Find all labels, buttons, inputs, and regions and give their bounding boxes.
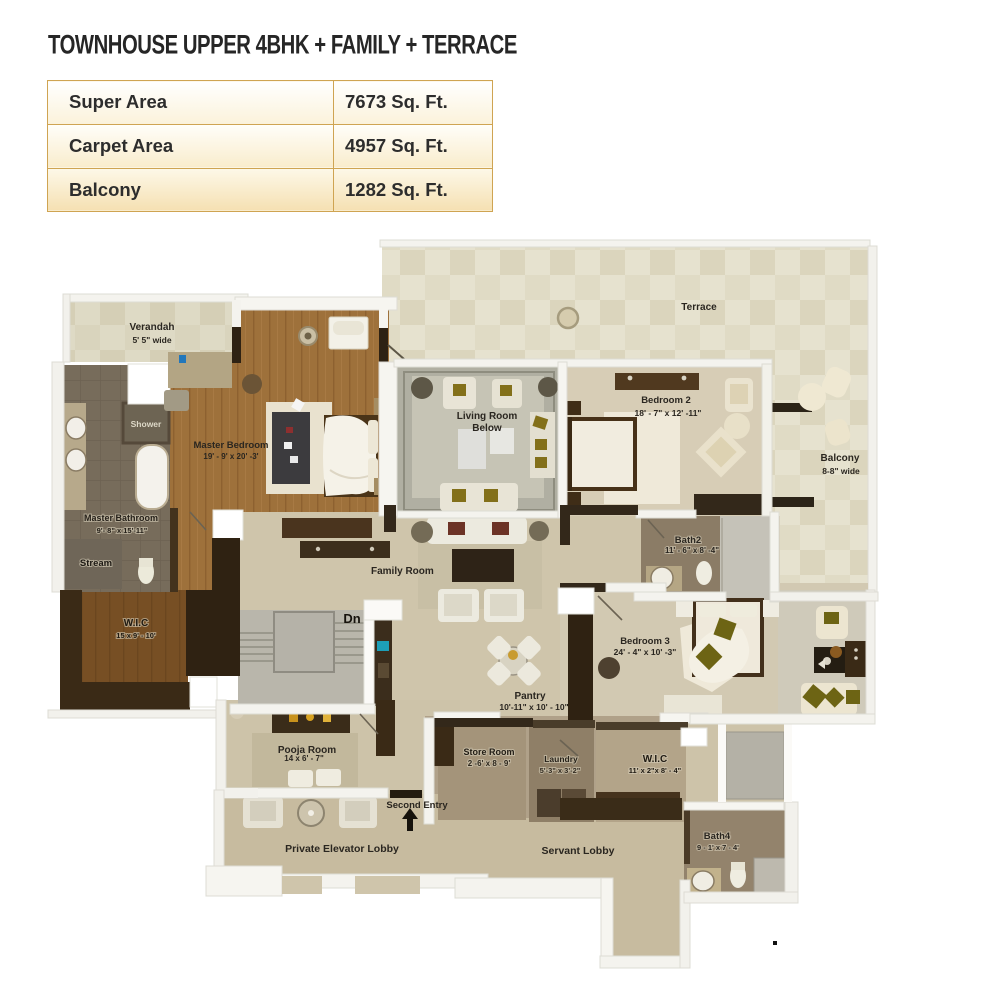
- svg-text:Private Elevator Lobby: Private Elevator Lobby: [285, 843, 399, 855]
- svg-text:Terrace: Terrace: [681, 302, 717, 313]
- svg-text:W.I.C: W.I.C: [124, 618, 148, 629]
- svg-text:24' - 4" x 10' -3": 24' - 4" x 10' -3": [614, 647, 677, 657]
- svg-text:11' x 2"x 8' - 4": 11' x 2"x 8' - 4": [629, 766, 682, 775]
- svg-text:Stream: Stream: [80, 558, 112, 569]
- svg-text:Living Room: Living Room: [457, 411, 518, 422]
- svg-text:9'- 8" x 15'-11": 9'- 8" x 15'-11": [97, 526, 148, 535]
- svg-text:5' 5" wide: 5' 5" wide: [132, 335, 171, 345]
- svg-text:Verandah: Verandah: [129, 322, 174, 333]
- svg-text:W.I.C: W.I.C: [643, 754, 667, 765]
- svg-text:Below: Below: [472, 423, 502, 434]
- svg-text:Bedroom 2: Bedroom 2: [641, 395, 691, 406]
- svg-text:14 x 6' - 7": 14 x 6' - 7": [284, 754, 324, 763]
- svg-text:15 x 9' - 10': 15 x 9' - 10': [116, 631, 156, 640]
- svg-text:Laundry: Laundry: [544, 754, 578, 764]
- svg-text:Master Bathroom: Master Bathroom: [84, 513, 158, 523]
- svg-text:18' - 7" x 12' -11": 18' - 7" x 12' -11": [635, 408, 702, 418]
- svg-text:10'-11" x 10' - 10": 10'-11" x 10' - 10": [499, 702, 568, 712]
- svg-text:11' - 6" x 8' -4": 11' - 6" x 8' -4": [665, 546, 719, 555]
- svg-text:19' - 9' x 20' -3': 19' - 9' x 20' -3': [203, 452, 258, 461]
- svg-text:Dn: Dn: [343, 611, 360, 626]
- svg-text:8-8" wide: 8-8" wide: [822, 466, 860, 476]
- svg-text:Balcony: Balcony: [821, 453, 860, 464]
- svg-text:Master Bedroom: Master Bedroom: [194, 440, 269, 451]
- svg-text:9 - 1' x 7 - 4': 9 - 1' x 7 - 4': [697, 843, 739, 852]
- svg-text:Bedroom 3: Bedroom 3: [620, 636, 670, 647]
- svg-text:Bath2: Bath2: [675, 535, 701, 546]
- svg-text:Servant Lobby: Servant Lobby: [542, 845, 615, 857]
- svg-text:Bath4: Bath4: [704, 831, 731, 842]
- svg-text:Store Room: Store Room: [463, 747, 514, 757]
- svg-text:Pantry: Pantry: [514, 691, 546, 702]
- svg-text:2 -6' x 8 - 9': 2 -6' x 8 - 9': [468, 759, 511, 768]
- svg-text:Family Room: Family Room: [371, 566, 434, 577]
- svg-text:Second Entry: Second Entry: [386, 800, 448, 811]
- svg-text:Shower: Shower: [131, 419, 162, 429]
- svg-text:5'-3" x 3'-2": 5'-3" x 3'-2": [540, 766, 581, 775]
